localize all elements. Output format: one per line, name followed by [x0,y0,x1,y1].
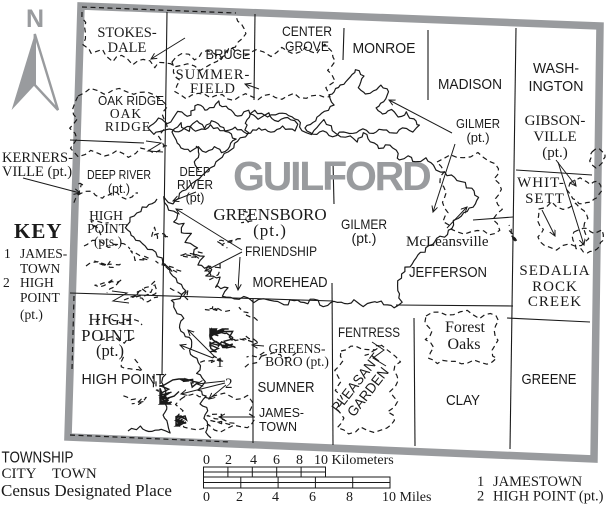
svg-text:1: 1 [4,246,11,261]
svg-text:CITY: CITY [2,466,37,482]
svg-text:Census Designated Place: Census Designated Place [1,481,172,500]
svg-text:McLeansville: McLeansville [406,234,489,250]
svg-text:0: 0 [203,453,210,468]
svg-text:DEEP RIVER: DEEP RIVER [87,168,151,182]
svg-text:FIELD: FIELD [190,81,236,97]
svg-text:(pt.): (pt.) [20,307,43,322]
svg-text:JAMES-: JAMES- [259,405,304,420]
svg-text:(pt.): (pt.) [466,130,489,145]
svg-text:8: 8 [346,490,353,505]
svg-text:0: 0 [203,490,210,505]
svg-text:2: 2 [225,453,232,468]
svg-text:Oaks: Oaks [448,336,481,353]
svg-text:(pt.): (pt.) [108,182,130,196]
svg-text:MONROE: MONROE [353,41,416,57]
svg-text:WASH-: WASH- [533,61,579,77]
svg-text:WHIT-: WHIT- [517,175,565,191]
svg-text:6: 6 [273,453,280,468]
svg-text:(pt.): (pt.) [253,221,287,240]
svg-text:GROVE: GROVE [285,38,329,54]
svg-text:(pts.): (pts.) [94,234,122,249]
svg-text:CREEK: CREEK [528,294,582,310]
svg-text:SEDALIA: SEDALIA [519,263,590,279]
svg-text:POINT: POINT [20,290,61,305]
svg-text:STOKES-: STOKES- [97,25,157,41]
svg-text:TOWN: TOWN [52,466,97,482]
svg-text:FRIENDSHIP: FRIENDSHIP [245,244,317,259]
svg-text:N: N [26,5,44,33]
svg-text:2: 2 [236,490,243,505]
svg-text:BRUCE: BRUCE [206,46,251,62]
svg-text:JAMES-: JAMES- [20,246,68,261]
svg-text:4: 4 [272,490,279,505]
svg-text:4: 4 [250,453,257,468]
svg-text:KEY: KEY [14,219,63,243]
svg-text:HIGH POINT: HIGH POINT [82,371,165,388]
svg-text:(pt): (pt) [186,191,205,205]
svg-text:1: 1 [216,355,224,371]
svg-text:10 Miles: 10 Miles [382,490,431,505]
svg-text:Forest: Forest [445,319,486,336]
svg-text:DEEP: DEEP [180,165,211,179]
svg-text:TOWN: TOWN [259,419,297,434]
svg-text:MOREHEAD: MOREHEAD [253,275,328,291]
svg-text:DALE: DALE [108,40,147,56]
svg-text:2: 2 [3,275,10,290]
svg-text:GIBSON-: GIBSON- [525,113,586,129]
svg-text:BORO (pt.): BORO (pt.) [265,354,329,369]
svg-text:MADISON: MADISON [438,77,502,93]
svg-text:SETT: SETT [525,191,565,207]
svg-text:8: 8 [296,453,303,468]
svg-text:HIGH: HIGH [20,275,54,290]
svg-text:(pt.): (pt.) [96,341,124,360]
svg-text:SUMNER: SUMNER [258,380,315,396]
svg-text:ROCK: ROCK [532,279,578,295]
svg-text:10 Kilometers: 10 Kilometers [314,453,394,468]
svg-text:GREENE: GREENE [522,372,577,388]
svg-text:6: 6 [309,490,316,505]
svg-text:CENTER: CENTER [282,23,332,39]
svg-text:VILLE: VILLE [533,129,576,145]
svg-text:VILLE (pt.): VILLE (pt.) [2,164,72,180]
svg-text:FENTRESS: FENTRESS [338,324,400,340]
svg-text:RIVER: RIVER [177,178,213,192]
svg-text:2: 2 [477,489,484,505]
svg-text:TOWN: TOWN [20,261,60,276]
svg-text:(pt.): (pt.) [542,145,567,161]
svg-text:TOWNSHIP: TOWNSHIP [2,450,74,467]
svg-text:RIDGE: RIDGE [105,119,151,134]
svg-text:GILMER: GILMER [456,116,500,131]
svg-text:HIGH POINT (pt.): HIGH POINT (pt.) [493,489,604,505]
svg-text:CLAY: CLAY [446,393,480,409]
svg-text:JEFFERSON: JEFFERSON [409,265,487,281]
svg-text:INGTON: INGTON [529,79,584,95]
svg-text:2: 2 [225,376,233,392]
svg-text:(pt.): (pt.) [352,230,377,246]
